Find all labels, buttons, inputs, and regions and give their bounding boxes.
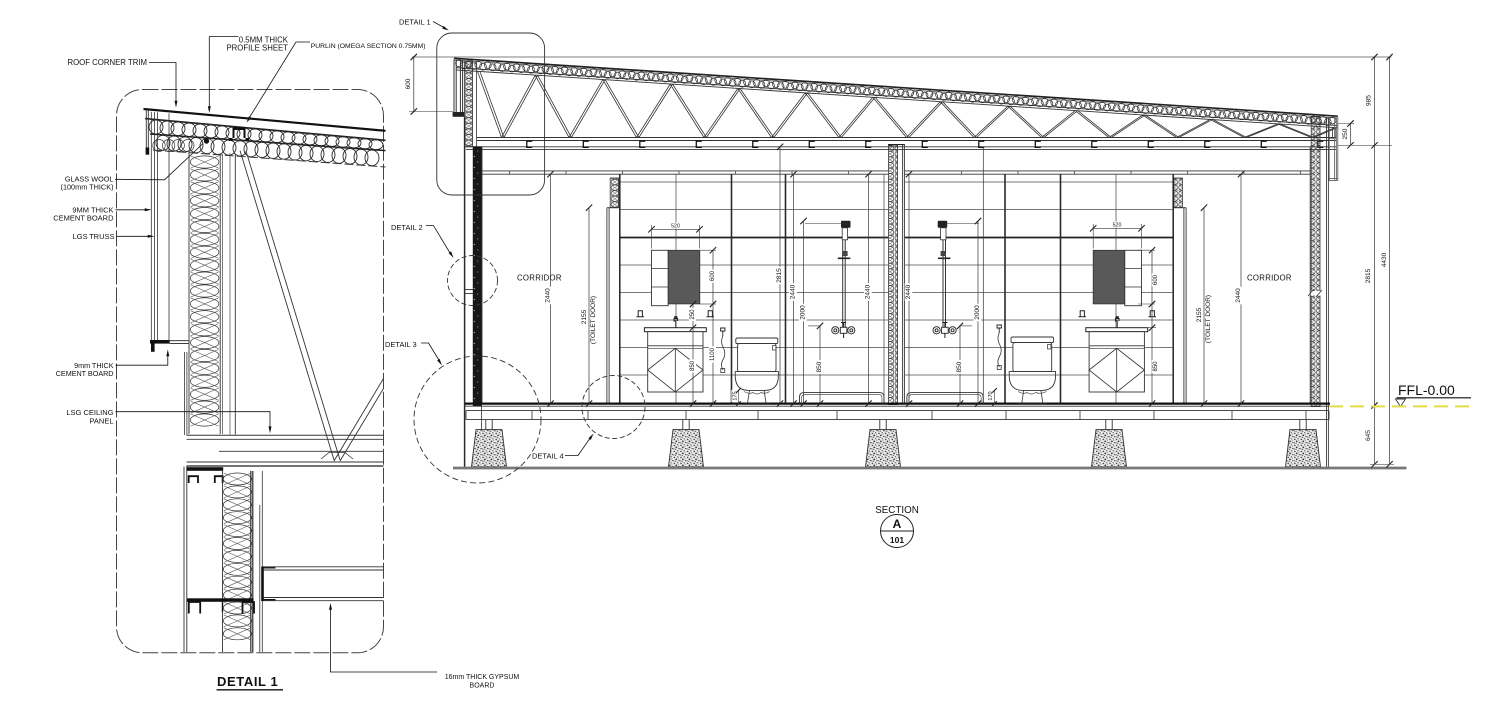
- svg-text:DETAIL 1: DETAIL 1: [217, 674, 278, 689]
- svg-text:101: 101: [890, 535, 904, 545]
- svg-text:(TOILET DOOR): (TOILET DOOR): [1205, 295, 1212, 343]
- svg-text:600: 600: [405, 78, 412, 89]
- svg-text:250: 250: [1342, 128, 1349, 139]
- svg-text:600: 600: [1153, 274, 1159, 285]
- svg-text:2440: 2440: [865, 284, 872, 299]
- svg-text:600: 600: [710, 270, 716, 281]
- svg-text:DETAIL 1: DETAIL 1: [399, 18, 431, 27]
- svg-text:645: 645: [1365, 430, 1372, 441]
- svg-text:16mm THICK GYPSUM: 16mm THICK GYPSUM: [445, 674, 520, 681]
- svg-text:PANEL: PANEL: [89, 416, 113, 425]
- svg-text:850: 850: [816, 361, 823, 372]
- svg-text:CEMENT BOARD: CEMENT BOARD: [53, 213, 114, 222]
- svg-text:520: 520: [671, 224, 680, 230]
- svg-text:2815: 2815: [776, 268, 783, 283]
- svg-text:170: 170: [988, 391, 994, 400]
- svg-text:850: 850: [1153, 361, 1159, 372]
- svg-text:985: 985: [1366, 95, 1373, 106]
- svg-text:1100: 1100: [710, 347, 716, 361]
- svg-text:DETAIL 2: DETAIL 2: [391, 223, 423, 232]
- svg-text:2815: 2815: [1365, 268, 1372, 283]
- svg-text:2440: 2440: [1235, 288, 1242, 303]
- svg-text:DETAIL 3: DETAIL 3: [385, 340, 417, 349]
- svg-text:4430: 4430: [1381, 252, 1388, 267]
- svg-text:CORRIDOR: CORRIDOR: [1247, 274, 1292, 283]
- svg-text:2155: 2155: [1196, 307, 1203, 322]
- svg-text:175: 175: [732, 391, 738, 400]
- svg-text:2440: 2440: [905, 284, 912, 299]
- svg-text:250: 250: [690, 309, 696, 320]
- svg-text:PROFILE SHEET: PROFILE SHEET: [226, 44, 288, 53]
- svg-text:DETAIL 4: DETAIL 4: [532, 452, 564, 461]
- svg-text:LGS TRUSS: LGS TRUSS: [73, 232, 115, 241]
- svg-text:2000: 2000: [974, 305, 981, 320]
- svg-text:CEMENT BOARD: CEMENT BOARD: [56, 369, 114, 378]
- svg-text:850: 850: [956, 361, 963, 372]
- svg-text:850: 850: [690, 360, 696, 371]
- svg-text:520: 520: [1113, 223, 1122, 229]
- svg-text:2155: 2155: [581, 309, 588, 324]
- svg-text:2000: 2000: [800, 305, 807, 320]
- svg-text:(100mm THICK): (100mm THICK): [61, 183, 114, 192]
- svg-text:ROOF CORNER TRIM: ROOF CORNER TRIM: [67, 58, 147, 67]
- svg-text:BOARD: BOARD: [470, 683, 495, 690]
- svg-text:PURLIN (OMEGA SECTION 0.75MM): PURLIN (OMEGA SECTION 0.75MM): [311, 43, 426, 50]
- svg-text:(TOILET DOOR): (TOILET DOOR): [590, 296, 597, 344]
- svg-text:A: A: [893, 517, 902, 531]
- svg-text:2440: 2440: [545, 288, 552, 303]
- svg-text:FFL-0.00: FFL-0.00: [1398, 382, 1455, 398]
- svg-text:CORRIDOR: CORRIDOR: [517, 274, 562, 283]
- svg-text:2440: 2440: [790, 284, 797, 299]
